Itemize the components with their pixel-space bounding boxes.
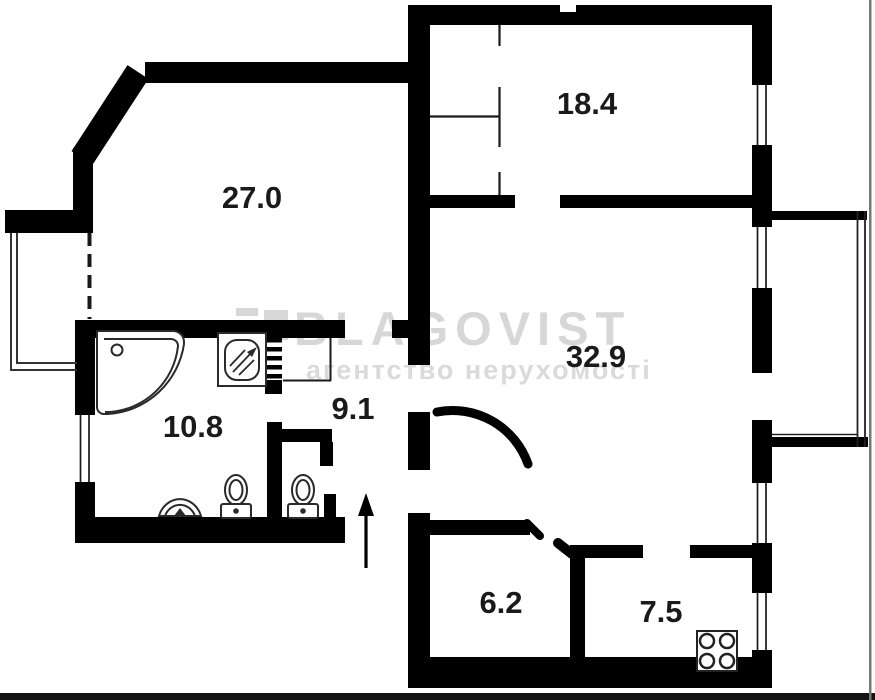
toilet-wc — [288, 475, 318, 518]
entrance-arrow — [358, 493, 374, 568]
gas-stove — [697, 631, 737, 671]
closet-partitions — [430, 25, 500, 195]
right-balcony — [770, 211, 868, 447]
window-18-4 — [758, 85, 767, 145]
floor-plan-image: BLAGOVIST агентство нерухомості — [0, 0, 875, 700]
window-kitchen-lower — [758, 593, 767, 650]
photo-right-edge — [869, 0, 872, 700]
room-label-18-4: 18.4 — [557, 86, 618, 121]
room-label-7-5: 7.5 — [639, 594, 682, 629]
room-label-32-9: 32.9 — [566, 339, 626, 374]
toilet-bathroom — [221, 475, 251, 518]
ventilation-shaft — [265, 338, 331, 381]
diagonal-wall — [82, 72, 138, 158]
room-label-10-8: 10.8 — [163, 409, 223, 444]
washbasin — [159, 499, 201, 516]
corner-bathtub — [97, 331, 184, 414]
photo-bottom-edge — [0, 693, 875, 700]
window-32-9 — [758, 227, 767, 288]
window-kitchen-upper — [758, 483, 767, 543]
wall-corner-chamfer — [558, 543, 572, 554]
room-label-9-1: 9.1 — [331, 391, 374, 426]
wall-notch — [560, 3, 576, 12]
floor-plan-drawing: 27.0 18.4 32.9 10.8 9.1 6.2 7.5 — [0, 0, 875, 700]
tub-faucet — [112, 345, 123, 356]
window-bathroom — [81, 415, 90, 482]
shower-cabin — [218, 333, 266, 386]
room-label-27-0: 27.0 — [222, 180, 282, 215]
door-arc — [437, 410, 528, 464]
room-label-6-2: 6.2 — [479, 585, 522, 620]
